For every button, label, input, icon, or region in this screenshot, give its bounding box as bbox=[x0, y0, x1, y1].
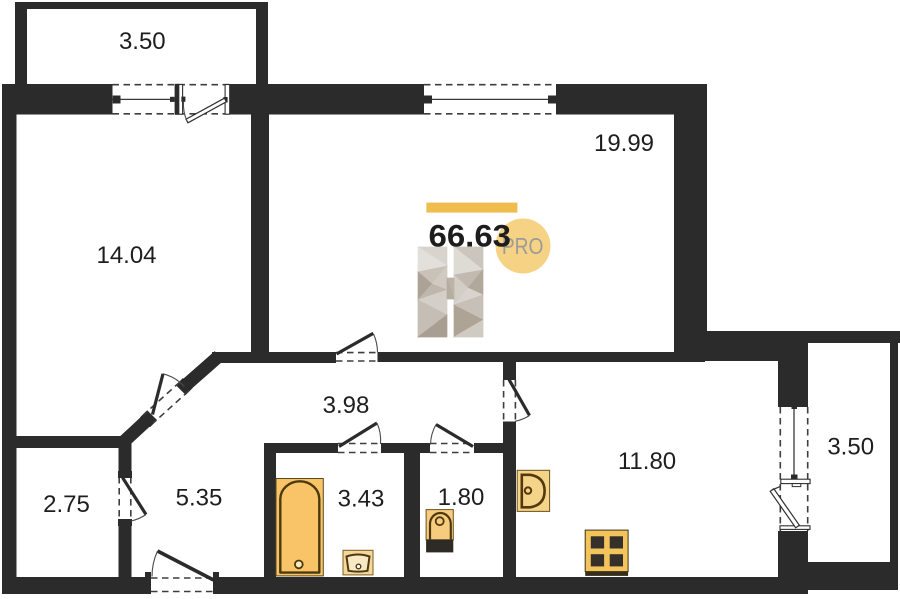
svg-text:3.98: 3.98 bbox=[323, 392, 370, 419]
svg-text:3.50: 3.50 bbox=[119, 28, 166, 55]
svg-text:5.35: 5.35 bbox=[176, 485, 223, 512]
svg-text:3.50: 3.50 bbox=[827, 434, 874, 461]
svg-text:19.99: 19.99 bbox=[594, 130, 654, 157]
svg-text:66.63: 66.63 bbox=[429, 218, 512, 254]
svg-text:14.04: 14.04 bbox=[96, 242, 156, 269]
svg-text:3.43: 3.43 bbox=[338, 486, 385, 513]
svg-text:1.80: 1.80 bbox=[438, 484, 485, 511]
svg-text:11.80: 11.80 bbox=[618, 448, 676, 475]
svg-text:2.75: 2.75 bbox=[43, 491, 90, 518]
